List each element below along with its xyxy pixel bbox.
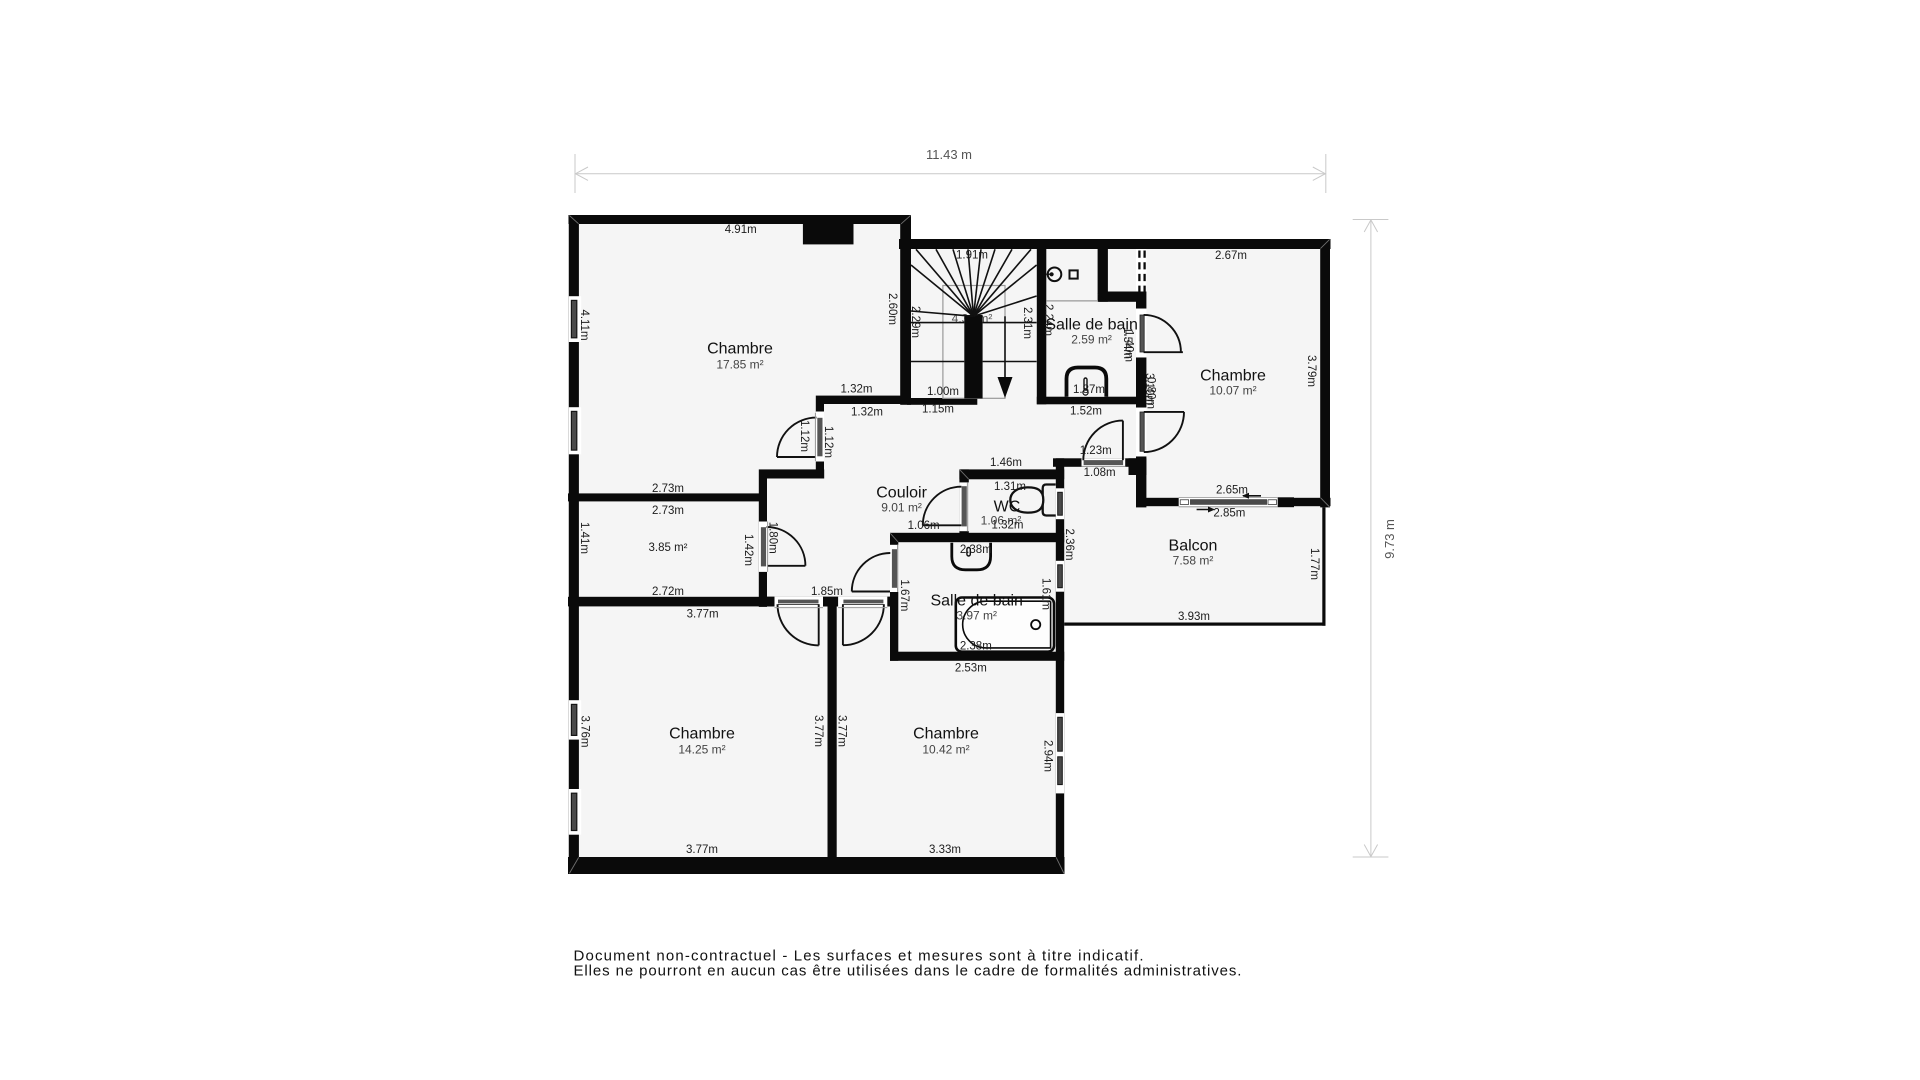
svg-text:1.80m: 1.80m	[767, 522, 779, 554]
svg-text:Salle de bain: Salle de bain	[930, 593, 1023, 610]
svg-text:2.60m: 2.60m	[886, 293, 898, 325]
svg-text:1.00m: 1.00m	[927, 386, 959, 398]
svg-text:2.67m: 2.67m	[1215, 250, 1247, 262]
svg-text:1.85m: 1.85m	[811, 586, 843, 598]
svg-text:10.42 m²: 10.42 m²	[922, 743, 969, 757]
svg-text:3.79m: 3.79m	[1305, 355, 1317, 387]
svg-text:17.85 m²: 17.85 m²	[716, 358, 763, 372]
svg-text:3.93m: 3.93m	[1178, 611, 1210, 623]
svg-text:2.73m: 2.73m	[652, 505, 684, 517]
svg-text:4.11m: 4.11m	[578, 309, 590, 340]
svg-text:1.61m: 1.61m	[1040, 578, 1052, 610]
svg-text:2.65m: 2.65m	[1216, 485, 1248, 497]
svg-text:1.32m: 1.32m	[841, 384, 873, 396]
svg-text:7.58 m²: 7.58 m²	[1173, 554, 1214, 568]
svg-text:2.53m: 2.53m	[955, 663, 987, 675]
svg-text:1.12m: 1.12m	[798, 420, 810, 452]
svg-text:1.32m: 1.32m	[992, 520, 1024, 532]
svg-text:1.77m: 1.77m	[1308, 548, 1320, 580]
svg-text:9.73 m: 9.73 m	[1382, 519, 1397, 559]
svg-text:3.97 m²: 3.97 m²	[956, 609, 997, 623]
svg-text:2.24m: 2.24m	[1042, 304, 1054, 336]
svg-text:2.59 m²: 2.59 m²	[1071, 333, 1112, 347]
svg-text:Balcon: Balcon	[1169, 538, 1218, 555]
svg-text:1.46m: 1.46m	[990, 457, 1022, 469]
svg-text:2.38m: 2.38m	[960, 641, 992, 653]
svg-text:3.77m: 3.77m	[686, 844, 718, 856]
svg-text:14.25 m²: 14.25 m²	[678, 743, 725, 757]
svg-text:Couloir: Couloir	[876, 485, 927, 502]
svg-text:2.72m: 2.72m	[652, 586, 684, 598]
svg-text:3.85 m²: 3.85 m²	[649, 542, 688, 554]
svg-text:10.07 m²: 10.07 m²	[1209, 384, 1256, 398]
svg-text:3.77m: 3.77m	[836, 715, 848, 747]
svg-text:1.08m: 1.08m	[1084, 467, 1116, 479]
svg-text:2.29m: 2.29m	[909, 306, 921, 338]
svg-text:4.91m: 4.91m	[725, 224, 757, 236]
svg-text:1.06m: 1.06m	[908, 520, 940, 532]
svg-text:9.01 m²: 9.01 m²	[881, 501, 922, 515]
svg-text:3.76m: 3.76m	[579, 716, 591, 748]
svg-text:Chambre: Chambre	[913, 726, 979, 743]
svg-text:3.77m: 3.77m	[812, 715, 824, 747]
svg-text:1.42m: 1.42m	[742, 534, 754, 566]
svg-text:1.31m: 1.31m	[994, 481, 1026, 493]
svg-text:Chambre: Chambre	[669, 726, 735, 743]
svg-text:1.87m: 1.87m	[1073, 384, 1105, 396]
svg-text:1.12m: 1.12m	[822, 426, 834, 458]
svg-text:Elles ne pourront en aucun cas: Elles ne pourront en aucun cas être util…	[574, 963, 1243, 980]
svg-text:1.40m: 1.40m	[1123, 330, 1135, 362]
svg-text:Chambre: Chambre	[1200, 368, 1266, 385]
svg-text:1.41m: 1.41m	[578, 522, 590, 554]
svg-text:2.36m: 2.36m	[1063, 529, 1075, 561]
svg-text:1.52m: 1.52m	[1070, 406, 1102, 418]
svg-text:1.67m: 1.67m	[898, 579, 910, 611]
svg-text:1.15m: 1.15m	[922, 404, 954, 416]
svg-text:Chambre: Chambre	[707, 341, 773, 358]
svg-text:0.80m: 0.80m	[1145, 377, 1157, 409]
svg-text:2.38m: 2.38m	[960, 544, 992, 556]
svg-text:3.77m: 3.77m	[687, 609, 719, 621]
svg-text:1.23m: 1.23m	[1080, 445, 1112, 457]
svg-text:2.73m: 2.73m	[652, 483, 684, 495]
svg-text:1.32m: 1.32m	[851, 407, 883, 419]
svg-text:11.43 m: 11.43 m	[926, 147, 972, 162]
svg-text:2.94m: 2.94m	[1042, 740, 1054, 772]
svg-text:2.85m: 2.85m	[1213, 508, 1245, 520]
svg-text:3.33m: 3.33m	[929, 844, 961, 856]
svg-text:2.31m: 2.31m	[1021, 307, 1033, 339]
svg-text:1.91m: 1.91m	[956, 250, 988, 262]
